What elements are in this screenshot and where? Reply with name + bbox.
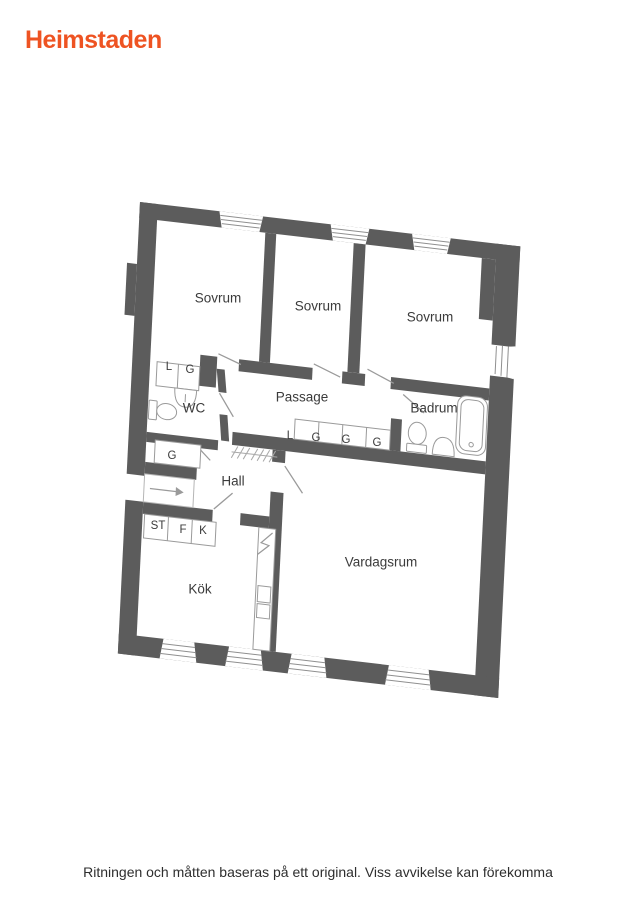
closet-label-g-1: G bbox=[186, 364, 195, 376]
passage-closet-g-1: G bbox=[312, 432, 321, 444]
kitchen-label-f: F bbox=[179, 524, 186, 536]
floorplan-labels: Sovrum Sovrum Sovrum Passage Badrum WC H… bbox=[0, 0, 636, 760]
room-label-hall: Hall bbox=[221, 474, 244, 489]
room-label-vardagsrum: Vardagsrum bbox=[345, 555, 418, 570]
kitchen-label-k: K bbox=[199, 525, 207, 537]
disclaimer-text: Ritningen och måtten baseras på ett orig… bbox=[0, 864, 636, 880]
passage-closet-g-2: G bbox=[342, 434, 351, 446]
floorplan-page: Heimstaden bbox=[0, 0, 636, 900]
room-label-sovrum-3: Sovrum bbox=[407, 310, 454, 325]
closet-label-g-hall: G bbox=[168, 450, 177, 462]
room-label-sovrum-2: Sovrum bbox=[295, 299, 342, 314]
room-label-wc: WC bbox=[183, 401, 206, 416]
room-label-kok: Kök bbox=[188, 582, 211, 597]
room-label-badrum: Badrum bbox=[410, 401, 457, 416]
passage-closet-l: L bbox=[287, 430, 293, 442]
passage-closet-g-3: G bbox=[373, 437, 382, 449]
room-label-passage: Passage bbox=[276, 390, 329, 405]
kitchen-label-st: ST bbox=[151, 520, 166, 532]
room-label-sovrum-1: Sovrum bbox=[195, 291, 242, 306]
closet-label-l-1: L bbox=[166, 361, 172, 373]
